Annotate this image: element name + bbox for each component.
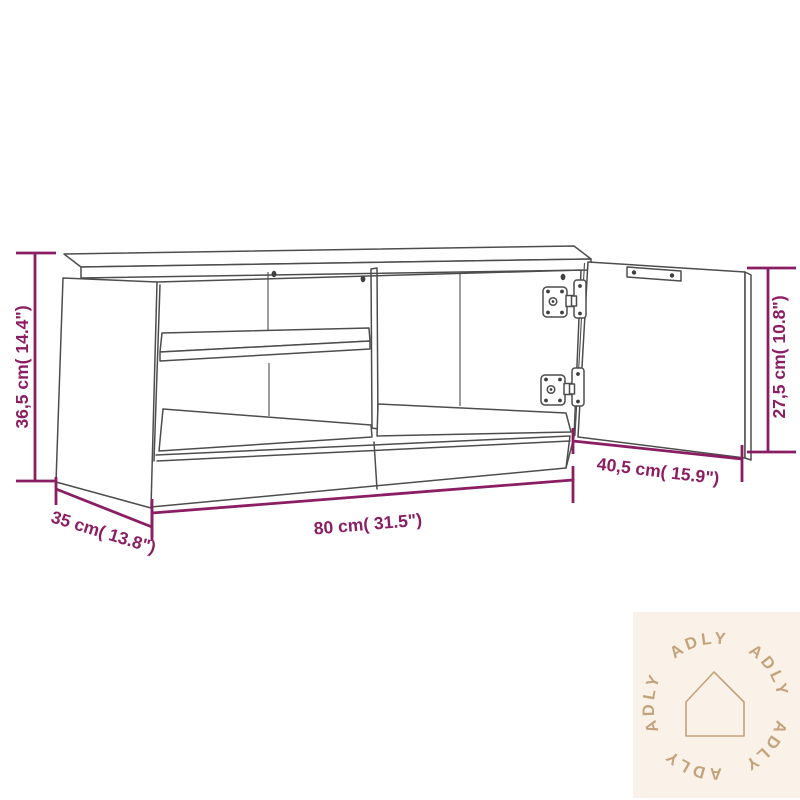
dim-height: 36,5 cm( 14.4") xyxy=(12,253,56,481)
screw-hole xyxy=(670,273,674,277)
screw-hole xyxy=(361,276,366,282)
screw-hole xyxy=(272,271,277,277)
dimension-diagram-canvas: 36,5 cm( 14.4") 27,5 cm( 10.8") 80 cm( 3… xyxy=(0,0,800,800)
right-floor xyxy=(377,404,571,436)
dim-door-width-label: 40,5 cm( 15.9") xyxy=(596,454,721,489)
screw-hole xyxy=(561,274,566,280)
dim-width: 80 cm( 31.5") xyxy=(152,466,573,539)
open-door-panel xyxy=(578,262,745,458)
cabinet-left-panel xyxy=(56,278,157,508)
left-floor xyxy=(159,409,372,451)
screw-hole xyxy=(632,270,636,274)
watermark-badge: ADLY ADLY ADLY ADLY ADLY xyxy=(633,612,800,798)
dim-door-height: 27,5 cm( 10.8") xyxy=(747,268,796,452)
dim-door-height-label: 27,5 cm( 10.8") xyxy=(769,295,789,418)
dim-height-label: 36,5 cm( 14.4") xyxy=(12,305,32,428)
dim-width-label: 80 cm( 31.5") xyxy=(313,510,423,539)
product-dimension-image: 36,5 cm( 14.4") 27,5 cm( 10.8") 80 cm( 3… xyxy=(0,0,800,800)
door-hinge-icon xyxy=(541,368,584,406)
open-door-edge xyxy=(745,272,751,460)
door-hinge-icon xyxy=(543,280,586,318)
dim-depth-label: 35 cm( 13.8") xyxy=(49,507,159,558)
center-partition xyxy=(371,268,378,429)
